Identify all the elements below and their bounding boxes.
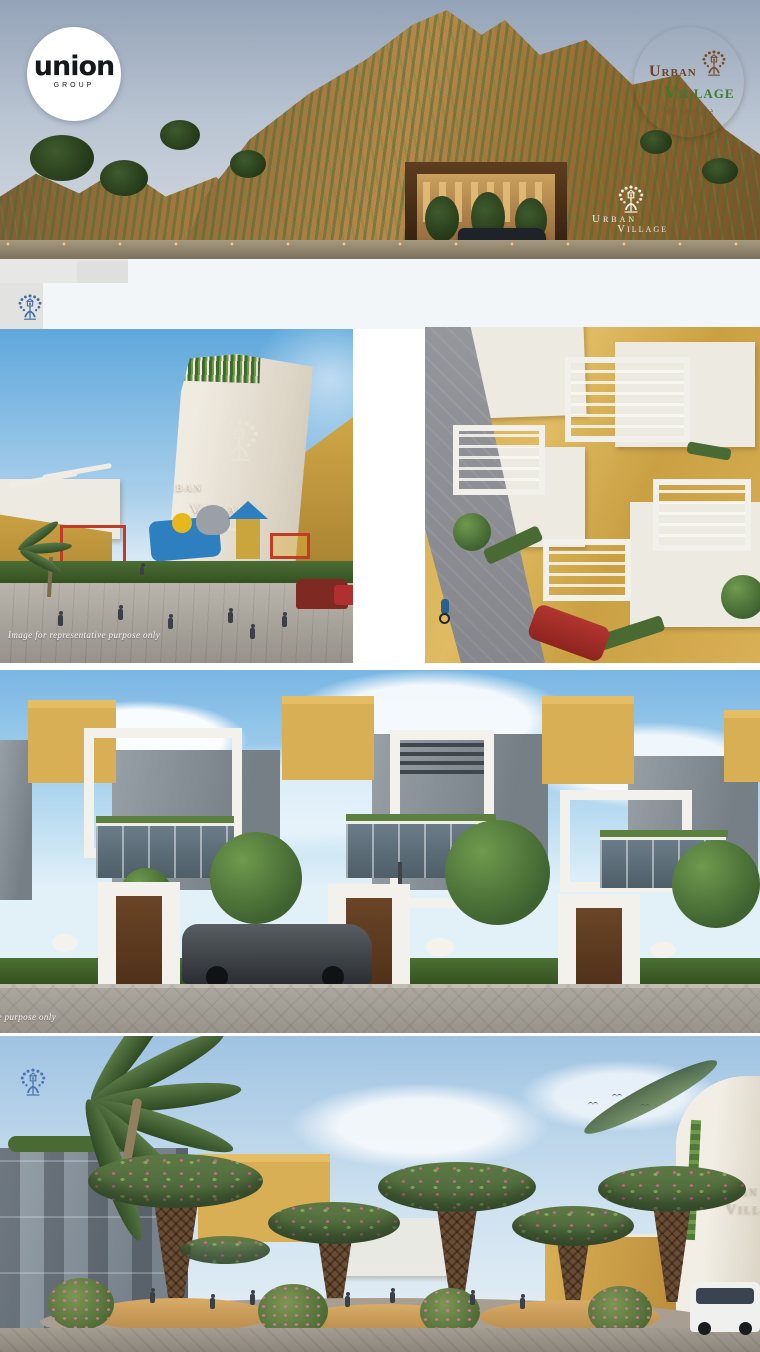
divider-strip [0,259,760,329]
urban-village-badge: Urban Village સૌને ગમે એવું ઘર [634,27,744,137]
tree [445,820,550,925]
suv-windows [696,1288,754,1304]
hero-image: Urban Village union GROUP Urban Village … [0,0,760,259]
playground-image: Urban Village Image for representative p… [0,329,353,663]
street-pavement [0,984,760,1033]
play-rail [270,533,310,559]
person-figure [118,609,123,620]
palm-cluster [702,158,738,184]
person-figure [250,628,255,639]
badge-word1: Urban [649,63,697,81]
plaza-bench [90,1298,270,1332]
flower-bush [48,1278,114,1330]
trellis-canopy [88,1154,263,1208]
person-figure [345,1296,350,1307]
parked-car [182,924,372,984]
cycle-wheel [439,613,450,624]
tree [453,513,491,551]
trellis-canopy [598,1166,746,1212]
trellis-canopy [180,1236,270,1264]
person-figure [470,1294,475,1305]
tree [210,832,302,924]
tree [672,840,760,928]
person-figure [150,1292,155,1303]
person-figure [210,1298,215,1309]
palm-cluster [160,120,200,150]
planter-bar [346,814,496,821]
sandstone-cube [282,696,374,780]
grass-fringe [181,353,261,384]
palm-silhouette [425,196,459,242]
urban-village-tree-icon [216,417,262,463]
palm-cluster [230,150,266,178]
patio-chair [650,942,676,958]
bird [588,1102,599,1108]
street-image: Image for representative purpose only [0,670,760,1033]
tree [721,575,760,619]
urban-village-tree-icon [700,49,728,77]
badge-word2: Village [664,82,735,103]
planter-bar [96,816,234,823]
gray-patch [77,261,128,283]
union-logo-text: union [27,51,121,82]
pergola-canopy [653,479,751,551]
disclaimer-text-partial: Image for representative purpose only [0,1012,56,1022]
person-figure [520,1298,525,1309]
play-tower-roof [228,501,268,519]
pergola-canopy [453,425,545,495]
gate-sign-word2: Village [588,224,674,235]
palm-cluster [30,135,94,181]
sandstone-cube [542,696,634,784]
palm-cluster [640,130,672,154]
trellis-canopy [378,1162,536,1212]
person-figure [168,618,173,629]
urban-village-tree-watermark-icon [16,290,44,324]
red-car [334,585,353,605]
planter-bar [600,830,728,837]
person-figure [58,615,63,626]
pergola-canopy [565,357,690,442]
elephant-sculpture [196,505,230,535]
slide-yellow [172,513,192,533]
car-wheel [698,1322,711,1335]
trellis-canopy [268,1202,400,1244]
person-figure [140,567,144,575]
urban-village-tree-icon [616,184,646,214]
trellis-canopy [512,1206,634,1246]
palm-cluster [100,160,148,196]
person-figure [282,616,287,627]
aerial-image [425,327,760,663]
cyclist-figure [441,599,449,614]
ground-pavement [0,1328,760,1352]
urban-village-tree-watermark-icon [18,1064,48,1100]
pergola-slats [400,740,484,774]
union-group-logo: union GROUP [27,27,121,121]
road-strip [0,240,760,259]
swing-frame [60,525,126,561]
white-suv [690,1282,760,1332]
person-figure [228,612,233,623]
car-wheel [739,1322,752,1335]
tower-sign-word1: Urban [155,480,203,496]
brochure-page: Urban Village union GROUP Urban Village … [0,0,760,1352]
patio-chair [426,938,454,956]
entry-portal [98,882,180,1000]
union-logo-subtext: GROUP [27,82,121,89]
person-figure [250,1294,255,1305]
plaza-image: Urban Village [0,1036,760,1352]
pergola-canopy [543,539,631,601]
pergola-beam [42,463,112,480]
person-figure [390,1292,395,1303]
corner-sign-word2: Village [726,1202,760,1218]
disclaimer-text: Image for representative purpose only [8,630,160,640]
play-tower-post [236,519,260,559]
badge-tagline: સૌને ગમે એવું ઘર [644,109,734,117]
sandstone-cube [724,710,760,782]
patio-chair [52,934,78,952]
